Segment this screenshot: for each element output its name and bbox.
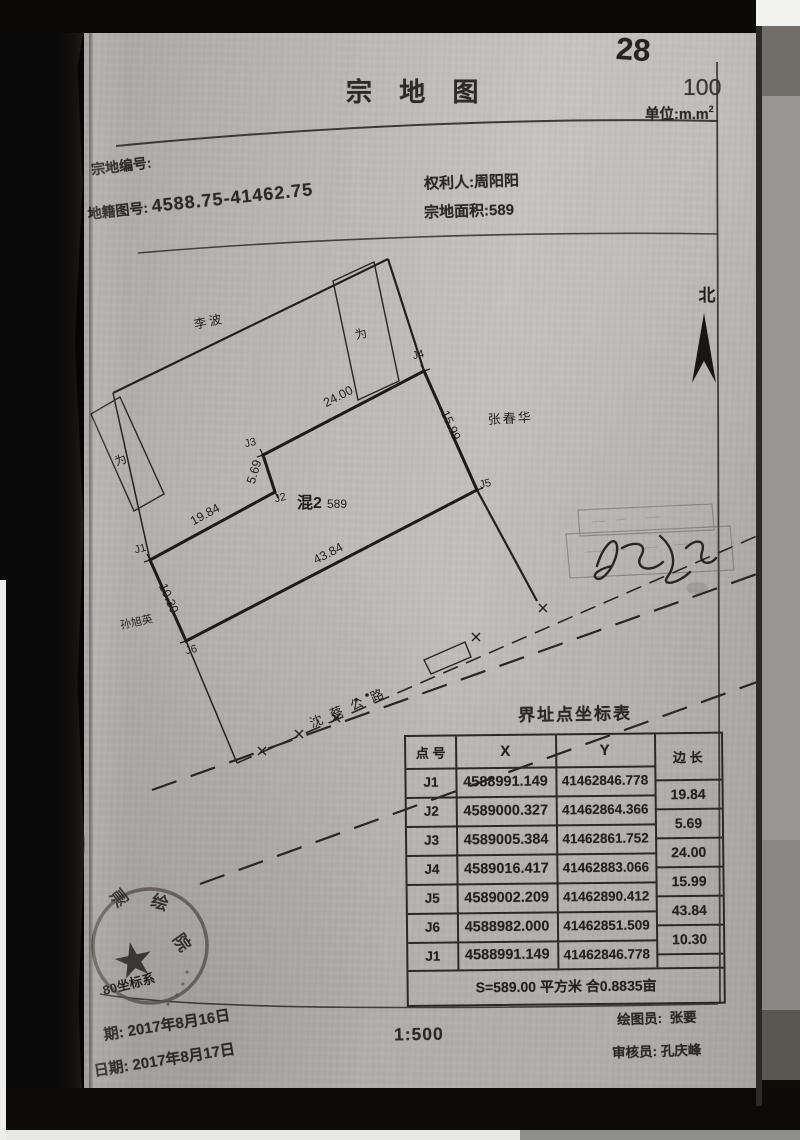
dim-j2-j3: 5.69 [244, 458, 265, 485]
cell-y: 41462846.778 [557, 939, 656, 968]
point-label-j5: J5 [478, 477, 492, 491]
scan-corner-bottom-right [520, 1130, 800, 1140]
dim-j6-j1: 10.30 [156, 581, 182, 615]
dim-j4-j5: 15.99 [438, 408, 464, 442]
reviewer-label: 审核员: [612, 1044, 657, 1061]
cell-y: 41462846.778 [555, 765, 654, 795]
col-header-x: X [455, 735, 555, 767]
reviewer-line: 审核员: 孔庆峰 [612, 1038, 702, 1061]
coordinate-table: 点 号 X Y 边 长 J1 4588991.149 41462846.778 … [404, 732, 726, 1007]
owner-name: 周阳阳 [474, 172, 520, 191]
outer-boundary-lines [113, 259, 537, 763]
unit-label: 单位:m.m2 [645, 103, 714, 124]
cell-x: 4589016.417 [456, 853, 556, 883]
page-fold-highlight [93, 30, 129, 1088]
scanned-cadastral-document: 北 为 为 混2 589 19.84 [0, 0, 800, 1140]
map-scale: 1:500 [394, 1024, 444, 1046]
header-rule-line [116, 120, 718, 146]
cell-y: 41462864.366 [556, 794, 655, 824]
unit-text: 单位:m.m [645, 107, 709, 123]
fence-x-marks [258, 604, 547, 755]
cell-x: 4588982.000 [457, 911, 557, 941]
neighbor-right-label: 张春华 [487, 410, 533, 427]
page-edge-shadow [756, 26, 762, 1106]
north-arrow-icon [692, 313, 716, 383]
dim-j3-j4: 24.00 [321, 383, 355, 410]
parcel-type-label: 混2 [297, 494, 322, 512]
drafter-line: 绘图员: 张要 [617, 1006, 697, 1029]
cell-y: 41462890.412 [557, 881, 656, 911]
owner-label: 权利人: [424, 174, 475, 193]
reviewer-name: 孔庆峰 [661, 1042, 702, 1058]
cell-length: 24.00 [655, 837, 722, 867]
rights-holder: 权利人:周阳阳 [424, 169, 520, 193]
cell-x: 4588991.149 [457, 940, 557, 969]
cell-y: 41462861.752 [556, 823, 655, 853]
table-summary: S=589.00 平方米 合0.8835亩 [408, 967, 723, 1005]
stamp-char-3: 院 [169, 930, 195, 955]
point-label-j1: J1 [133, 542, 147, 556]
scan-dark-edge-top [0, 0, 760, 33]
point-label-j6: J6 [184, 643, 198, 657]
culvert-symbol [424, 642, 471, 674]
cell-point: J1 [408, 941, 457, 970]
scan-white-sliver [0, 580, 6, 1140]
col-header-y: Y [555, 734, 654, 766]
cell-point: J5 [408, 883, 457, 913]
cell-y: 41462883.066 [556, 852, 655, 882]
cell-point: J2 [407, 796, 456, 826]
dim-j5-j6: 43.84 [311, 540, 345, 567]
point-label-j2: J2 [273, 491, 287, 505]
signature-smudge [686, 582, 708, 594]
point-label-j3: J3 [243, 436, 257, 450]
cell-length: 19.84 [654, 779, 721, 809]
cell-point: J3 [407, 825, 456, 855]
parcel-area-note: 589 [327, 497, 347, 511]
scan-edge-right [756, 0, 800, 1140]
cell-x: 4589005.384 [456, 824, 556, 854]
col-header-point: 点 号 [406, 736, 455, 768]
parcel-area: 宗地面积:589 [424, 198, 515, 222]
cell-length: 15.99 [655, 866, 722, 896]
cell-length: 10.30 [656, 924, 723, 954]
drafter-label: 绘图员: [617, 1011, 662, 1028]
cell-point: J4 [407, 854, 456, 884]
building-mark-1: 为 [353, 326, 368, 343]
col-header-length: 边 长 [654, 734, 721, 780]
cell-point: J1 [406, 767, 455, 797]
cell-x: 4588991.149 [455, 766, 555, 796]
coordinate-table-title: 界址点坐标表 [518, 699, 632, 726]
faint-stamp-boxes [566, 504, 734, 578]
page-title: 宗 地 图 [346, 72, 488, 109]
point-label-j4: J4 [411, 348, 425, 362]
cell-point: J6 [408, 912, 457, 942]
area-value: 589 [489, 201, 515, 219]
handwritten-doc-number: 28 [615, 31, 652, 69]
stamp-char-2: 绘 [149, 890, 171, 914]
sheet-number: 100 [683, 74, 721, 101]
cell-length: 43.84 [656, 895, 723, 925]
neighbor-top-label: 李波 [193, 311, 226, 332]
north-label: 北 [699, 286, 716, 305]
subheader-rule-line [138, 233, 718, 253]
drafter-name: 张要 [669, 1010, 697, 1026]
area-label: 宗地面积: [424, 202, 490, 221]
scan-dark-edge-left [0, 0, 88, 1140]
cell-x: 4589002.209 [457, 882, 557, 912]
cell-x: 4589000.327 [456, 795, 556, 825]
road-name-label: 沈蔡公路 [307, 683, 394, 731]
cell-y: 41462851.509 [557, 910, 656, 940]
cell-length: 5.69 [655, 808, 722, 838]
unit-superscript: 2 [709, 104, 714, 114]
